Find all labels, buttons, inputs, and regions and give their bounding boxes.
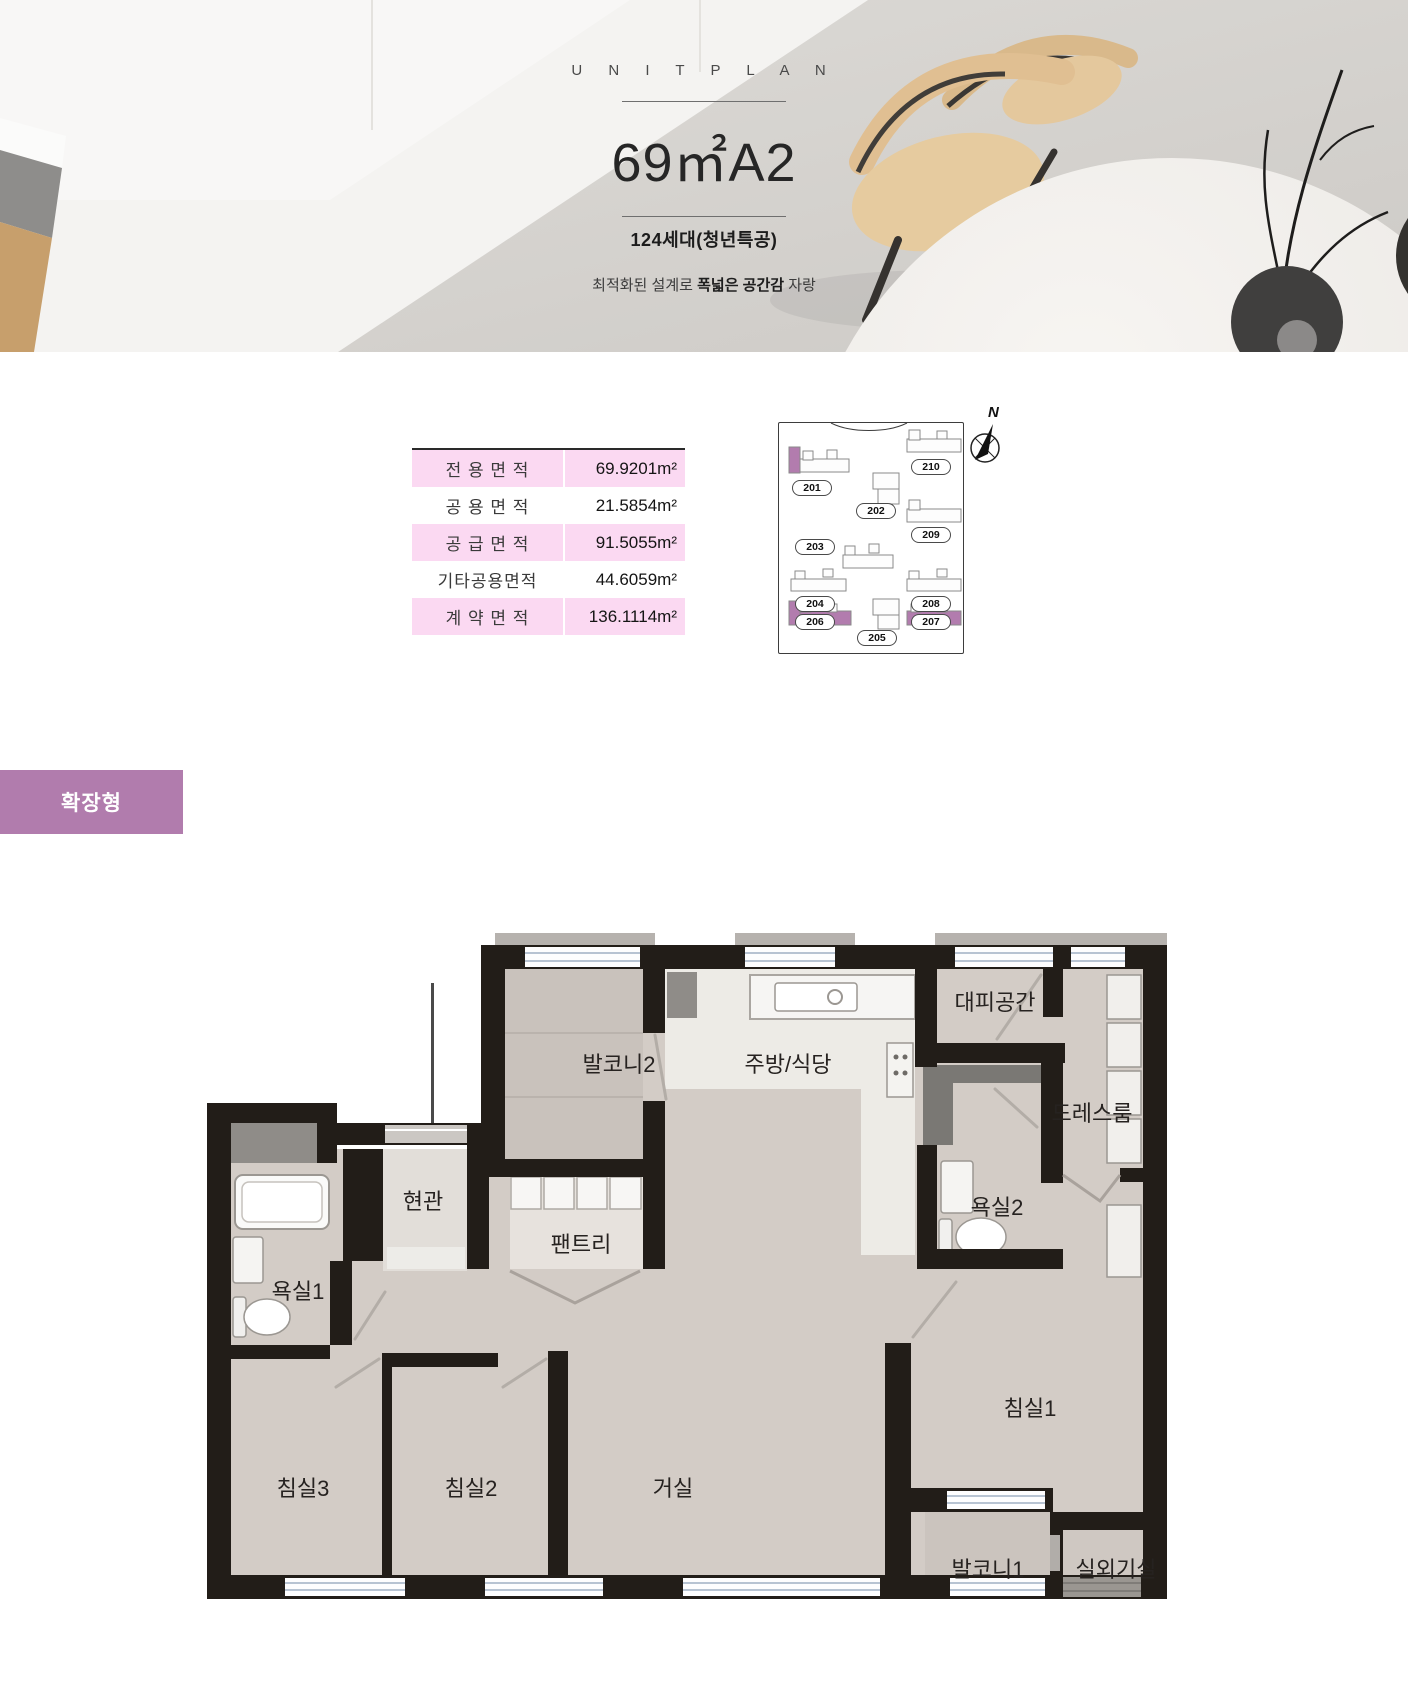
- building-badge-201: 201: [792, 480, 832, 496]
- room-label-kitchen: 주방/식당: [744, 1047, 831, 1079]
- table-row: 기타공용면적 44.6059m²: [412, 561, 685, 598]
- area-value: 136.1114m²: [565, 598, 685, 635]
- room-label-entrance: 현관: [403, 1184, 443, 1216]
- room-label-bedroom2: 침실2: [445, 1471, 498, 1503]
- room-label-living: 거실: [653, 1471, 693, 1503]
- floor-plan-drawing: [195, 875, 1205, 1620]
- floor-plan: 발코니2 주방/식당 대피공간 드레스룸 욕실2 현관 팬트리 욕실1 침실3 …: [195, 875, 1205, 1620]
- room-label-pantry: 팬트리: [551, 1227, 612, 1259]
- room-label-dressroom: 드레스룸: [1052, 1096, 1133, 1128]
- room-label-balcony2: 발코니2: [583, 1047, 656, 1079]
- table-row: 공 급 면 적 91.5055m²: [412, 524, 685, 561]
- building-badge-207: 207: [911, 614, 951, 630]
- area-label: 계 약 면 적: [412, 598, 565, 635]
- divider-line: [622, 101, 786, 102]
- building-badge-203: 203: [795, 539, 835, 555]
- area-value: 69.9201m²: [565, 450, 685, 487]
- highlighted-unit: [789, 447, 800, 473]
- plan-type-badge: 확장형: [0, 770, 183, 834]
- room-label-bath2: 욕실2: [971, 1190, 1024, 1222]
- entrance-door: [385, 1125, 467, 1143]
- table-row: 계 약 면 적 136.1114m²: [412, 598, 685, 635]
- building-badge-210: 210: [911, 459, 951, 475]
- divider-line: [622, 216, 786, 217]
- area-label: 전 용 면 적: [412, 450, 565, 487]
- table-row: 공 용 면 적 21.5854m²: [412, 487, 685, 524]
- room-label-bedroom1: 침실1: [1004, 1391, 1057, 1423]
- stove: [887, 1043, 913, 1097]
- site-plan-map: 201 202 203 204 205 206 207 208 209 210: [778, 422, 964, 654]
- building-badge-202: 202: [856, 503, 896, 519]
- building-badge-209: 209: [911, 527, 951, 543]
- area-label: 기타공용면적: [412, 561, 565, 598]
- room-label-bedroom3: 침실3: [277, 1471, 330, 1503]
- balcony-door: [1050, 1535, 1060, 1571]
- room-label-outdoor-unit: 실외기실: [1076, 1552, 1157, 1584]
- units-count-badge: 124세대(청년특공): [0, 226, 1408, 252]
- table-row: 전 용 면 적 69.9201m²: [412, 450, 685, 487]
- unit-title: 69㎡A2: [0, 118, 1408, 197]
- sink: [233, 1237, 263, 1283]
- compass: N: [962, 404, 1014, 470]
- room-label-bath1: 욕실1: [272, 1274, 325, 1306]
- building-badge-206: 206: [795, 614, 835, 630]
- room-label-refuge: 대피공간: [955, 985, 1036, 1017]
- building-badge-204: 204: [795, 596, 835, 612]
- building-badge-205: 205: [857, 630, 897, 646]
- area-value: 21.5854m²: [565, 487, 685, 524]
- compass-north-label: N: [988, 404, 999, 421]
- area-label: 공 급 면 적: [412, 524, 565, 561]
- tagline: 최적화된 설계로 폭넓은 공간감 자랑: [0, 274, 1408, 295]
- hero-section: U N I T P L A N 69㎡A2 124세대(청년특공) 최적화된 설…: [0, 0, 1408, 352]
- unit-plan-eyebrow: U N I T P L A N: [0, 62, 1408, 79]
- area-value: 44.6059m²: [565, 561, 685, 598]
- area-value: 91.5055m²: [565, 524, 685, 561]
- area-label: 공 용 면 적: [412, 487, 565, 524]
- building-badge-208: 208: [911, 596, 951, 612]
- room-label-balcony1: 발코니1: [952, 1552, 1025, 1584]
- sink: [941, 1161, 973, 1213]
- area-spec-table: 전 용 면 적 69.9201m² 공 용 면 적 21.5854m² 공 급 …: [412, 448, 685, 635]
